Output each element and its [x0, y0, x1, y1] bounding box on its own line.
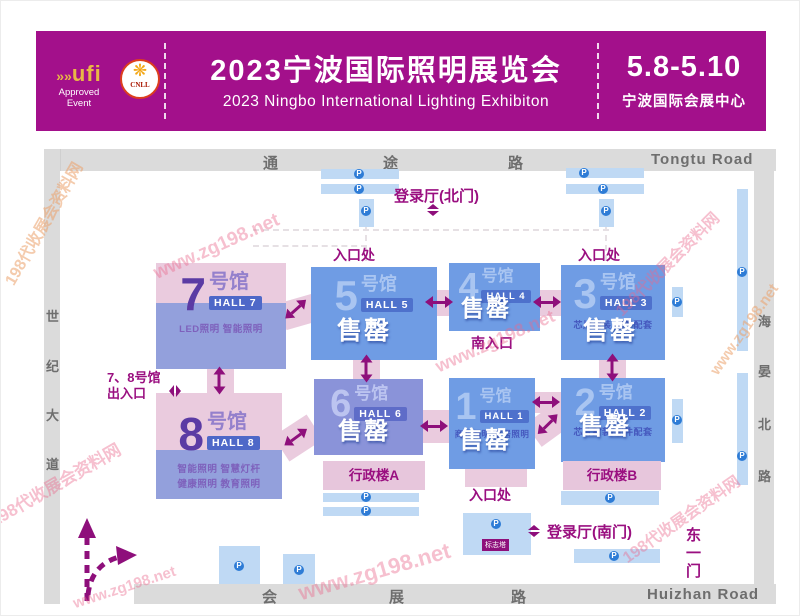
banner-divider: [164, 43, 166, 119]
banner-divider: [597, 43, 599, 119]
hall-4: 4 号馆 HALL 4 售罄: [449, 263, 540, 331]
sold-out-label: 售罄: [459, 420, 511, 455]
parking-icon: P: [354, 169, 364, 179]
corridor: [465, 467, 527, 487]
entrance-label: 入口处: [469, 485, 511, 505]
ufi-arrows-icon: »»: [56, 68, 72, 84]
sold-out-label: 售罄: [583, 311, 637, 347]
road-label: 晏: [758, 361, 771, 380]
parking-icon: P: [579, 168, 589, 178]
road-label: 路: [508, 152, 523, 173]
hall-3-unit: 号馆: [600, 273, 653, 293]
sold-out-label: 售罄: [337, 311, 391, 347]
gate-diamond-icon: [427, 204, 440, 217]
road-label: 展: [389, 586, 404, 607]
hall-5-badge: HALL 5: [361, 298, 414, 312]
hall-5-unit: 号馆: [361, 275, 414, 295]
road-label: 大: [46, 405, 59, 424]
entrance-label: 入口处: [333, 245, 375, 265]
road-label: 路: [511, 586, 526, 607]
hall-3: 3 号馆 HALL 3 芯片封装/配件配套 售罄: [561, 265, 665, 360]
hall-3-badge: HALL 3: [600, 296, 653, 310]
sold-out-label: 售罄: [461, 289, 511, 323]
page-title: 2023宁波国际照明展览会: [176, 47, 596, 89]
hall-2: 2 号馆 HALL 2 芯片封装/配件配套 售罄: [561, 378, 665, 462]
title-block: 2023宁波国际照明展览会 2023 Ningbo International …: [176, 31, 596, 131]
admin-building-b: 行政楼B: [563, 461, 661, 490]
guide-path: [253, 229, 609, 231]
parking-bar: [323, 493, 419, 502]
hall-8-unit: 号馆: [207, 411, 260, 433]
hall-5: 5 号馆 HALL 5 售罄: [311, 267, 437, 360]
parking-icon: P: [361, 206, 371, 216]
hall-1-unit: 号馆: [480, 388, 529, 406]
sold-out-label: 售罄: [579, 406, 631, 441]
two-way-arrow-icon: [541, 301, 553, 304]
road-label: 道: [46, 454, 59, 473]
header-banner: »»ufi Approved Event ❋ CNLL 2023宁波国际照明展览…: [36, 31, 766, 131]
two-way-arrow-icon: [218, 375, 221, 387]
exit-route-arrows-icon: [61, 513, 171, 605]
hall78-gate-label: 出入口: [107, 383, 146, 402]
hall-6-unit: 号馆: [354, 385, 407, 404]
hall-7-badge: HALL 7: [209, 296, 262, 310]
ufi-logo: »»ufi Approved Event: [46, 61, 112, 109]
cnll-label: CNLL: [122, 81, 158, 89]
road-label: 北: [758, 414, 771, 433]
two-way-arrow-icon: [611, 362, 614, 374]
ufi-approved-label: Approved: [46, 87, 112, 98]
parking-icon: P: [234, 561, 244, 571]
south-lobby-label: 登录厅(南门): [547, 521, 632, 542]
south-entrance-label: 南入口: [471, 333, 513, 353]
parking-icon: P: [672, 297, 682, 307]
parking-icon: P: [354, 184, 364, 194]
ufi-event-label: Event: [46, 98, 112, 109]
two-way-arrow-icon: [433, 301, 445, 304]
parking-icon: P: [361, 506, 371, 516]
entrance-label: 入口处: [578, 245, 620, 265]
hall-6: 6 号馆 HALL 6 售罄: [314, 379, 423, 455]
hall-7-number: 7: [180, 271, 206, 317]
cnll-logo: ❋ CNLL: [120, 59, 160, 99]
two-way-arrow-icon: [365, 363, 368, 375]
east-gate-label: 东一门: [682, 527, 703, 581]
parking-bar: [323, 507, 419, 516]
hall-8-tags: 健康照明 教育照明: [156, 476, 282, 490]
hall-1: 1 号馆 HALL 1 商业照明 家居照明 售罄: [449, 378, 535, 469]
road-label-en: Huizhan Road: [647, 586, 759, 603]
road-label: 会: [262, 586, 277, 607]
road-label: 纪: [46, 356, 59, 375]
hall-8-number: 8: [178, 411, 204, 457]
hall-3-number: 3: [574, 273, 597, 315]
page-subtitle: 2023 Ningbo International Lighting Exhib…: [176, 93, 596, 111]
hall-8-badge: HALL 8: [207, 436, 260, 450]
parking-icon: P: [598, 184, 608, 194]
parking-icon: P: [737, 451, 747, 461]
parking-icon: P: [601, 206, 611, 216]
two-way-arrow-icon: [428, 425, 440, 428]
road-label: 路: [758, 466, 771, 485]
exhibition-floorplan-page: »»ufi Approved Event ❋ CNLL 2023宁波国际照明展览…: [0, 0, 800, 616]
road-label-en: Tongtu Road: [651, 151, 753, 168]
gate-diamond-icon: [528, 525, 541, 538]
two-way-arrow-icon: [540, 401, 552, 404]
sign-tower-badge: 标志塔: [482, 539, 509, 551]
hall-8: 8 号馆 HALL 8 智能照明 智慧灯杆 健康照明 教育照明: [156, 393, 282, 499]
ufi-label: ufi: [72, 61, 102, 86]
gate-diamond-icon: [169, 385, 182, 398]
parking-bar: [566, 168, 644, 178]
hall-8-tags: 智能照明 智慧灯杆: [156, 461, 282, 475]
hall-7-tags: LED照明 智能照明: [156, 321, 286, 335]
parking-icon: P: [294, 565, 304, 575]
road-label: 世: [46, 306, 59, 325]
road-shiji-avenue: [44, 149, 60, 604]
sold-out-label: 售罄: [338, 411, 390, 446]
parking-icon: P: [361, 492, 371, 502]
event-dates: 5.8-5.10: [604, 51, 764, 84]
parking-icon: P: [609, 551, 619, 561]
hall-4-unit: 号馆: [481, 268, 530, 286]
hall-7: 7 号馆 HALL 7 LED照明 智能照明: [156, 263, 286, 369]
parking-icon: P: [605, 493, 615, 503]
road-label: 海: [758, 311, 771, 330]
hall-7-unit: 号馆: [209, 271, 262, 293]
parking-icon: P: [672, 415, 682, 425]
cnll-flower-icon: ❋: [122, 61, 158, 81]
parking-bar: [737, 373, 748, 485]
parking-icon: P: [737, 267, 747, 277]
event-venue: 宁波国际会展中心: [604, 90, 764, 111]
parking-icon: P: [491, 519, 501, 529]
admin-building-a: 行政楼A: [323, 461, 425, 490]
road-label: 通: [263, 152, 278, 173]
hall-2-unit: 号馆: [599, 384, 652, 403]
north-lobby-label: 登录厅(北门): [394, 185, 479, 206]
date-venue-block: 5.8-5.10 宁波国际会展中心: [604, 31, 764, 111]
